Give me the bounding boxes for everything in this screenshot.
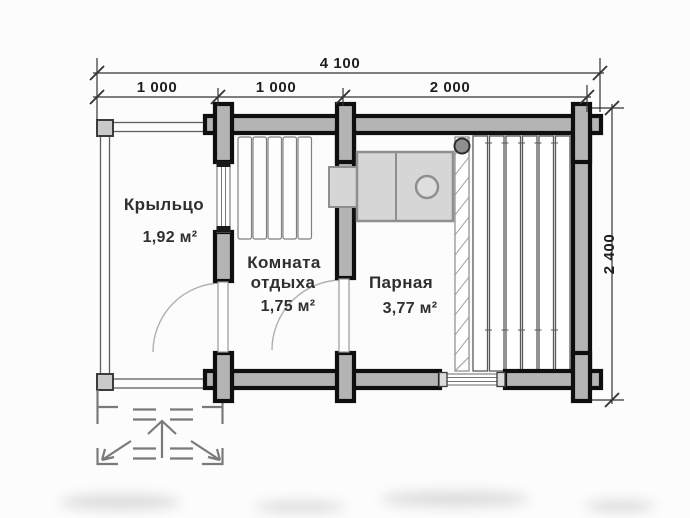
door-porch-leaf	[218, 282, 228, 352]
room-area-porch: 1,92 м²	[143, 229, 198, 246]
wall-top	[205, 116, 601, 133]
log-cross-top-middle	[337, 104, 354, 162]
log-cross-bottom-left	[215, 353, 232, 401]
room-label-porch: Крыльцо	[124, 195, 204, 214]
log-cross-bottom-right	[573, 353, 590, 401]
stove-firebox	[329, 167, 360, 207]
log-cross-bottom-middle	[337, 353, 354, 401]
log-cross-top-left	[215, 104, 232, 162]
fire-hatch-strip	[455, 137, 469, 371]
chimney-circle	[455, 139, 470, 154]
room-label-rest-line2: отдыха	[251, 273, 316, 292]
wall-right	[573, 129, 590, 372]
dim-seg1-label: 1 000	[137, 79, 178, 96]
room-label-steam: Парная	[369, 273, 433, 292]
dim-total-width-label: 4 100	[320, 55, 361, 72]
window-bottom-wall	[439, 373, 505, 387]
dim-height-label: 2 400	[601, 234, 618, 275]
wall-porch-block	[215, 232, 232, 281]
porch-rail-top	[113, 123, 215, 132]
porch-rail-left	[101, 136, 110, 374]
log-cross-top-right	[573, 104, 590, 162]
floor-plan: 4 100 1 000 1 000 2 000 2 400 Крыльцо 1,…	[0, 0, 690, 518]
room-area-rest: 1,75 м²	[261, 298, 316, 315]
stove-burner-circle	[416, 176, 438, 198]
door-steam-leaf	[339, 279, 349, 352]
wall-bottom-left	[205, 371, 440, 388]
dim-seg2-label: 1 000	[256, 79, 297, 96]
porch-post-bottom-left	[97, 374, 113, 390]
window-left-wall	[217, 161, 231, 232]
room-label-rest-line1: Комната	[247, 253, 321, 272]
room-area-steam: 3,77 м²	[383, 300, 438, 317]
porch-rail-bottom	[113, 379, 210, 388]
porch-post-top-left	[97, 120, 113, 136]
bench-planks	[238, 137, 312, 239]
dim-seg3-label: 2 000	[430, 79, 471, 96]
floor-plan-svg: 4 100 1 000 1 000 2 000 2 400 Крыльцо 1,…	[0, 0, 690, 518]
